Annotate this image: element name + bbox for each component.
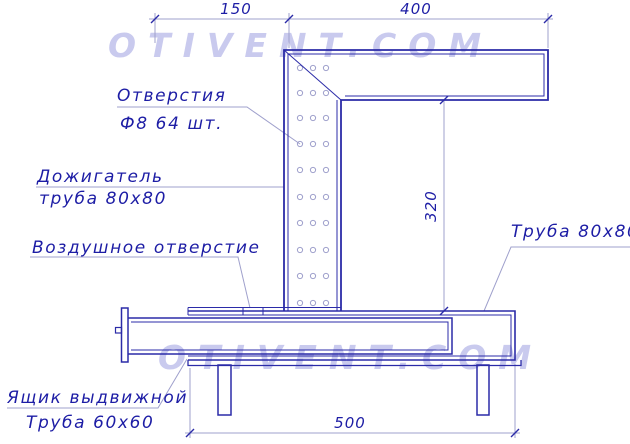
- pipe-outline-outer: [284, 50, 548, 311]
- hole-marker: [310, 90, 315, 95]
- dim-320-label: 320: [422, 190, 440, 222]
- hole-marker: [297, 90, 302, 95]
- hole-marker: [310, 167, 315, 172]
- holes-grid: [297, 65, 328, 305]
- drawer-handle: [116, 328, 122, 334]
- hole-marker: [323, 220, 328, 225]
- dim-400-label: 400: [400, 0, 432, 18]
- hole-marker: [323, 115, 328, 120]
- hole-marker: [323, 167, 328, 172]
- label-holes-line1: Отверстия: [117, 86, 226, 106]
- hole-marker: [297, 300, 302, 305]
- watermark-top: OTIVENT.COM: [108, 26, 493, 65]
- dim-500-label: 500: [334, 414, 366, 432]
- hole-marker: [323, 90, 328, 95]
- hole-marker: [323, 300, 328, 305]
- label-holes-line2: Ф8 64 шт.: [120, 114, 223, 134]
- drawer-front-flange: [122, 308, 129, 362]
- label-air-opening: Воздушное отверстие: [32, 238, 261, 258]
- label-drawer-line2: Труба 60x60: [26, 413, 154, 433]
- hole-marker: [323, 273, 328, 278]
- hole-marker: [310, 273, 315, 278]
- drawing-canvas: OTIVENT.COM OTIVENT.COM: [0, 0, 630, 444]
- hole-marker: [323, 194, 328, 199]
- hole-marker: [297, 247, 302, 252]
- label-afterburner-line2: труба 80x80: [39, 189, 167, 209]
- leader-right-pipe: [484, 247, 630, 311]
- hole-marker: [297, 273, 302, 278]
- technical-drawing: OTIVENT.COM OTIVENT.COM: [0, 0, 630, 444]
- hole-marker: [310, 300, 315, 305]
- hole-marker: [310, 65, 315, 70]
- hole-marker: [310, 247, 315, 252]
- hole-marker: [297, 220, 302, 225]
- hole-marker: [323, 65, 328, 70]
- pipe-outline-inner: [288, 54, 544, 311]
- hole-marker: [323, 247, 328, 252]
- label-right-pipe: Труба 80x80: [511, 222, 630, 242]
- hole-marker: [310, 194, 315, 199]
- watermark-bottom: OTIVENT.COM: [158, 338, 543, 377]
- hole-marker: [297, 194, 302, 199]
- label-afterburner-line1: Дожигатель: [36, 167, 164, 187]
- hole-marker: [310, 141, 315, 146]
- leader-air-opening: [30, 257, 250, 308]
- hole-marker: [310, 115, 315, 120]
- hole-marker: [323, 141, 328, 146]
- dim-150-label: 150: [220, 0, 252, 18]
- label-drawer-line1: Ящик выдвижной: [6, 388, 188, 408]
- hole-marker: [297, 115, 302, 120]
- hole-marker: [297, 167, 302, 172]
- hole-marker: [310, 220, 315, 225]
